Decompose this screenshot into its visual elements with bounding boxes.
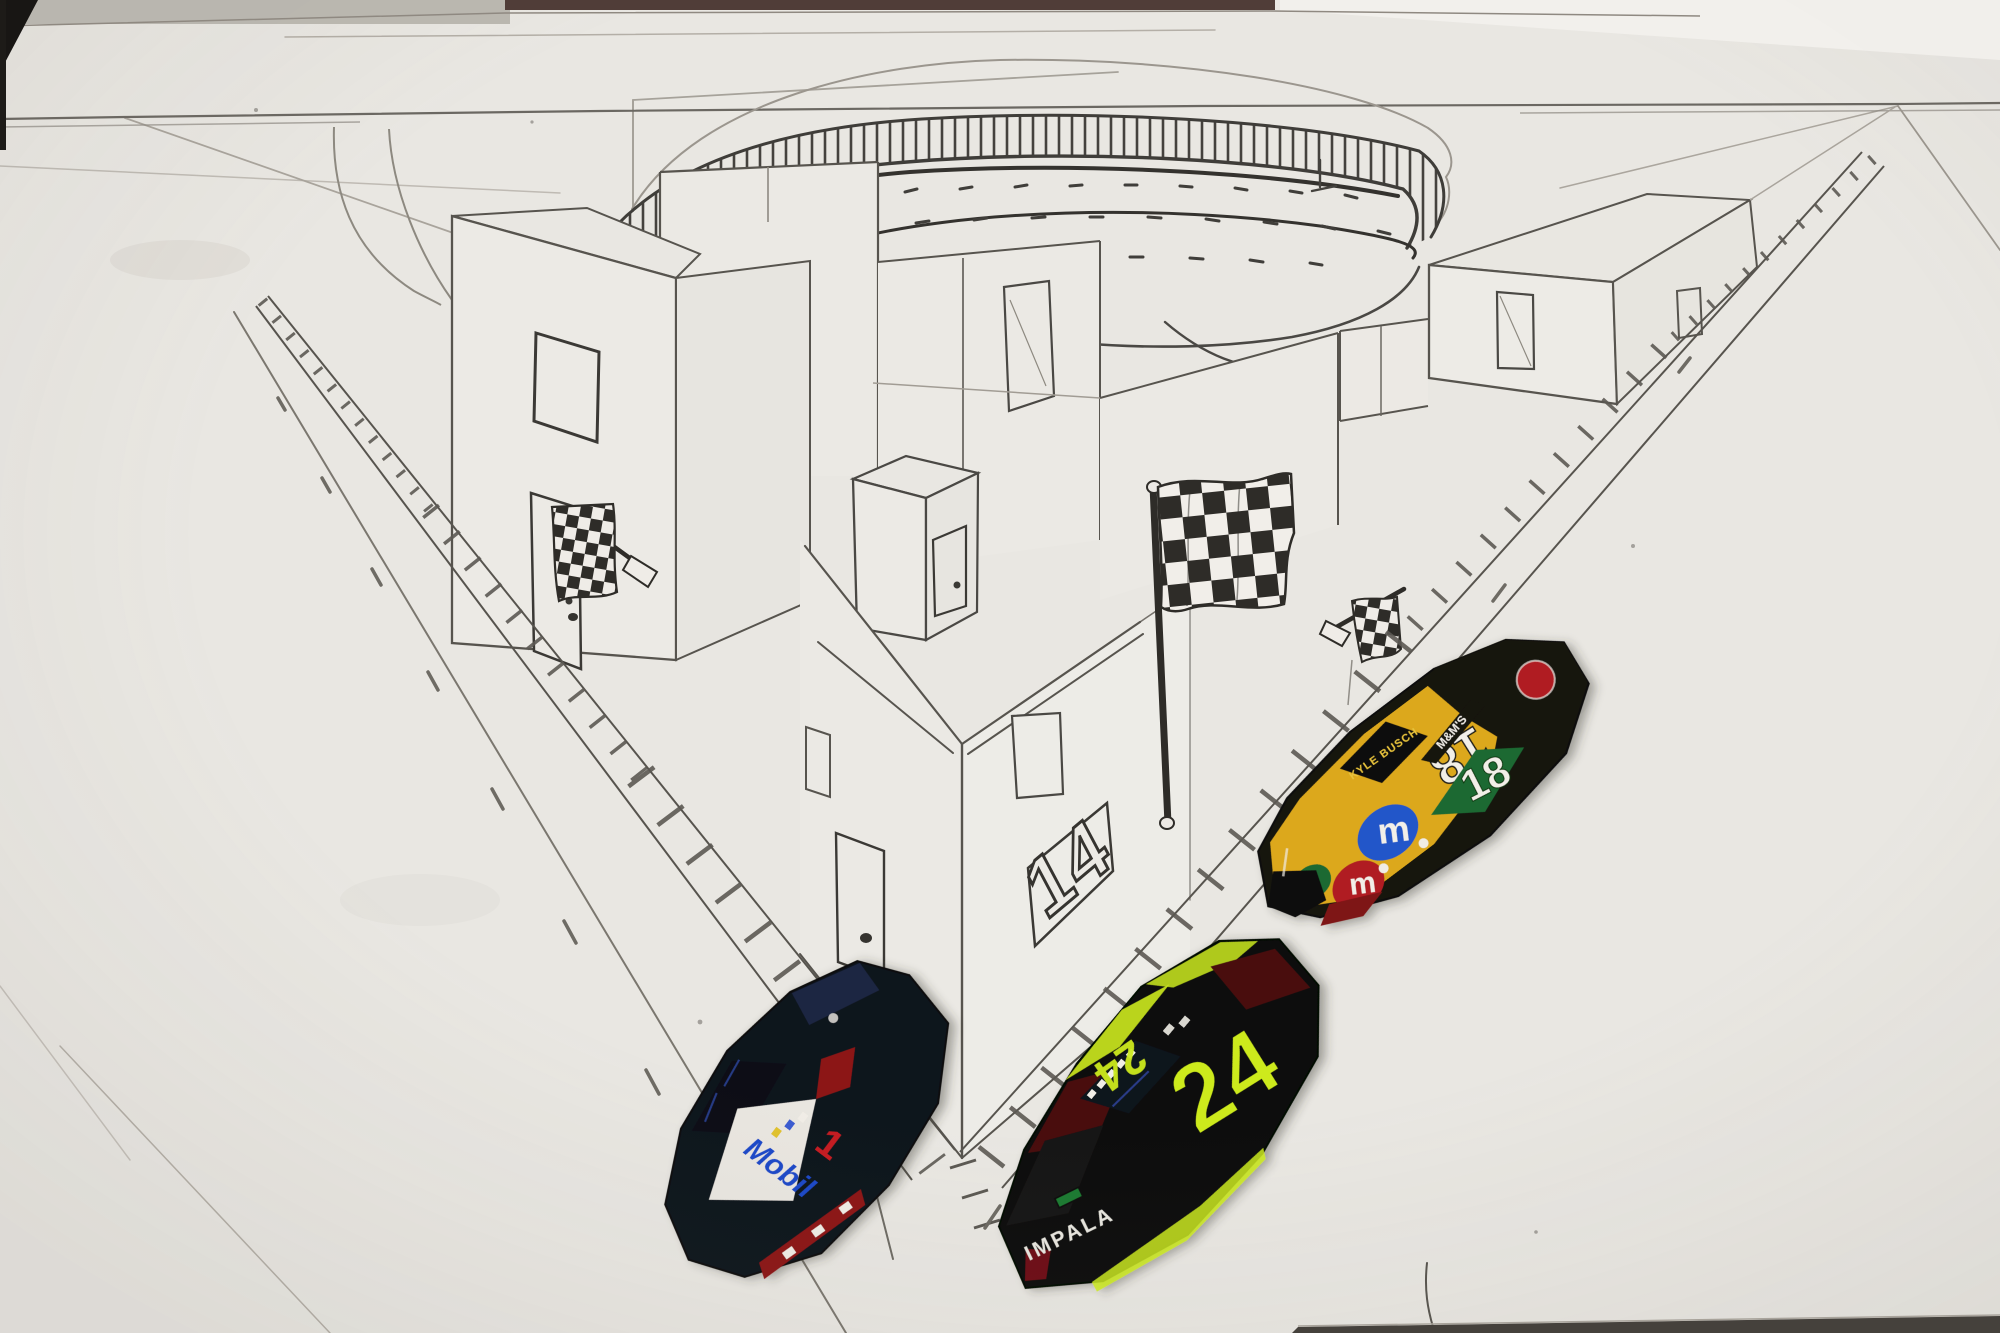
photo-vignette <box>0 0 2000 1333</box>
artwork-photo: 14 <box>0 0 2000 1333</box>
drawing-canvas: 14 <box>0 0 2000 1333</box>
